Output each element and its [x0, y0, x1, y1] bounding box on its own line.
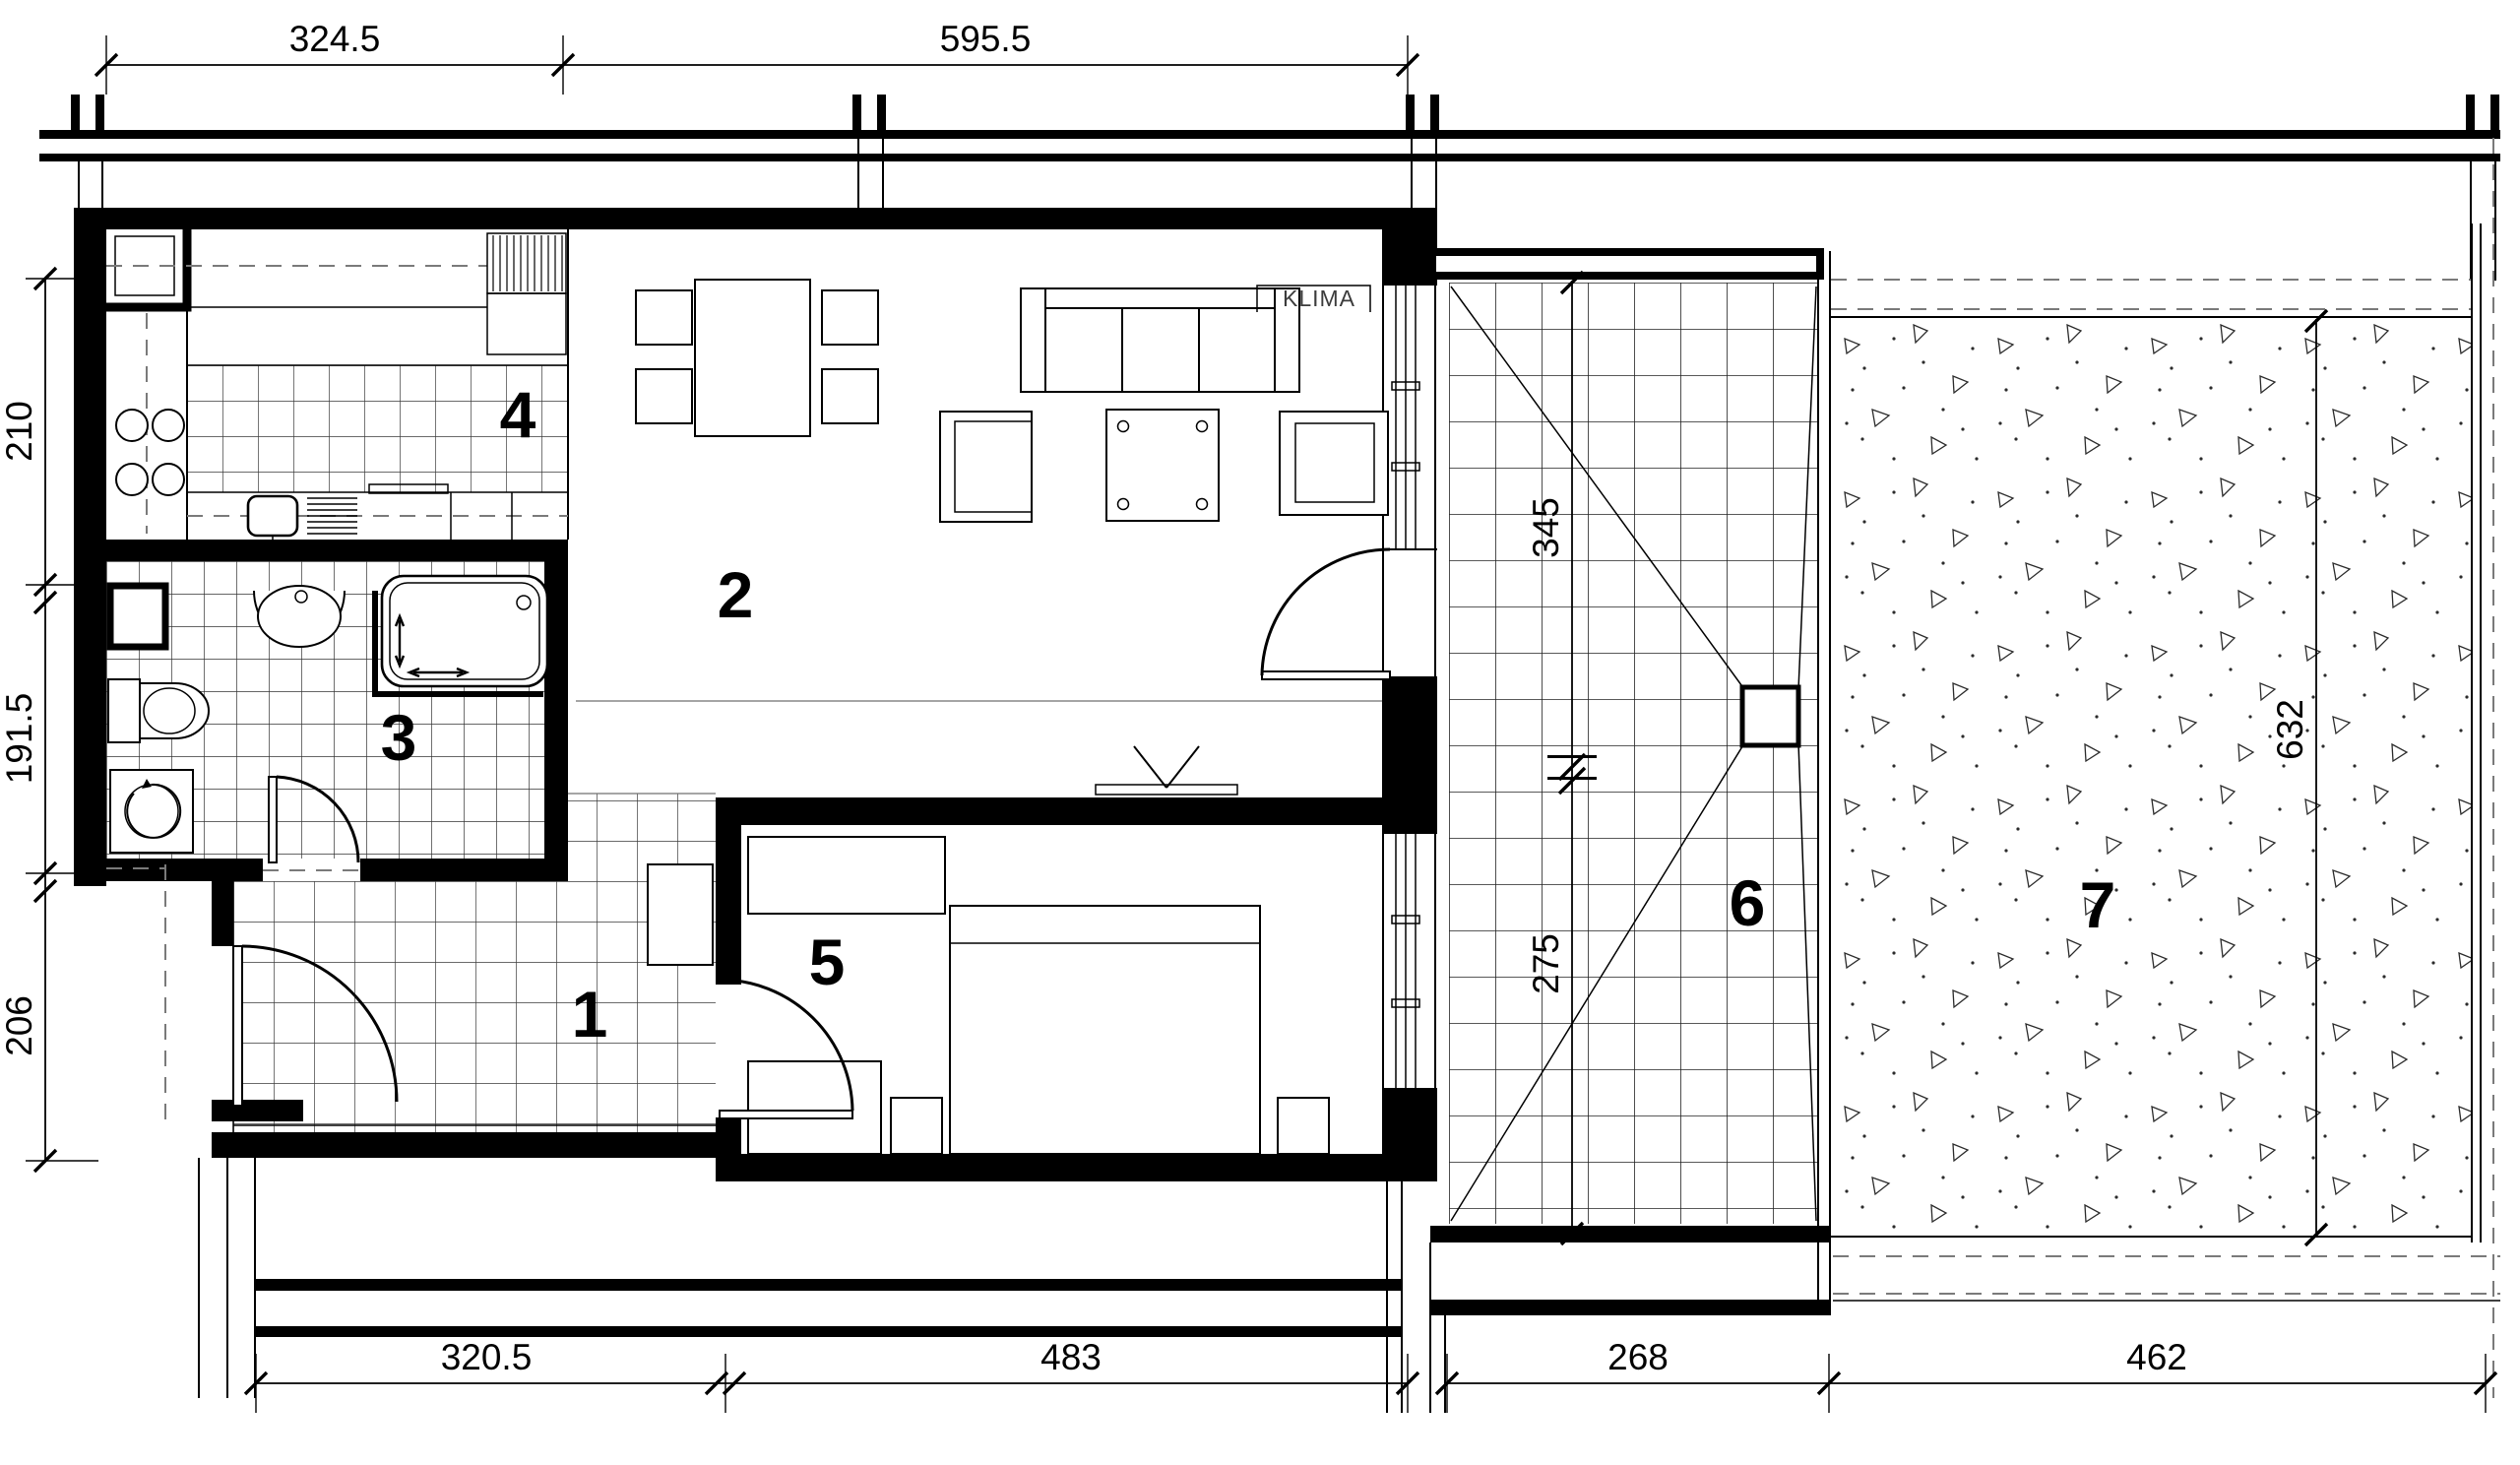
dim-top-2: 595.5: [940, 19, 1032, 59]
dim-bottom-3: 268: [1607, 1337, 1669, 1377]
washing-machine-icon: [110, 770, 193, 853]
balcony-tile-floor: [1449, 283, 1818, 1224]
dining-chair-icon: [636, 369, 692, 423]
dining-chair-icon: [822, 369, 878, 423]
room-label-2: 2: [718, 558, 754, 631]
north-wall: [74, 208, 1437, 229]
toilet-icon: [108, 679, 209, 742]
walkway-edge: [255, 1279, 1403, 1291]
dim-balcony-1: 345: [1526, 497, 1566, 558]
dim-bottom-1: 320.5: [441, 1337, 533, 1377]
dim-terrace-1: 632: [2270, 699, 2310, 760]
dim-left-1: 210: [0, 401, 39, 462]
floor-plan-drawing: KLIMA: [0, 0, 2520, 1465]
dim-bottom-4: 462: [2126, 1337, 2187, 1377]
dining-chair-icon: [822, 290, 878, 345]
hall-wardrobe-icon: [648, 864, 713, 965]
dim-left-3: 206: [0, 995, 39, 1056]
room-label-4: 4: [500, 378, 536, 451]
bedroom-window: [1392, 834, 1419, 1088]
room-label-3: 3: [381, 701, 417, 774]
bed-icon: [950, 906, 1260, 1154]
bathtub-icon: [375, 576, 547, 694]
bedroom-south-wall: [716, 1154, 1437, 1181]
armchair-icon: [1280, 412, 1388, 515]
terrace-gravel-floor: [1833, 319, 2471, 1235]
drainboard-icon: [307, 498, 357, 534]
hall-south-wall: [212, 1132, 716, 1158]
dining-chair-icon: [636, 290, 692, 345]
balcony-drain: [1742, 687, 1798, 745]
bathroom-shaft: [110, 586, 165, 647]
room-label-6: 6: [1730, 866, 1766, 939]
dim-left-2: 191.5: [0, 693, 39, 785]
floor-plan-sheet: KLIMA: [0, 0, 2520, 1465]
dim-top-1: 324.5: [289, 19, 381, 59]
living-room-window: [1392, 286, 1419, 549]
room-label-7: 7: [2080, 868, 2116, 941]
balcony-parapet-bottom: [1430, 1226, 1831, 1242]
armchair-icon: [940, 412, 1032, 522]
dim-balcony-2: 275: [1526, 933, 1566, 994]
living-bedroom-wall: [716, 797, 1437, 825]
dresser-icon: [748, 1061, 881, 1154]
dim-bottom-2: 483: [1040, 1337, 1102, 1377]
nightstand-icon: [1278, 1098, 1329, 1154]
coffee-table-icon: [1106, 410, 1219, 521]
nightstand-icon: [891, 1098, 942, 1154]
room-label-5: 5: [809, 925, 846, 998]
balcony-parapet-top: [1432, 252, 1820, 276]
bedroom-wardrobe-icon: [748, 837, 945, 914]
room-label-1: 1: [572, 978, 608, 1051]
klima-label: KLIMA: [1283, 286, 1355, 311]
